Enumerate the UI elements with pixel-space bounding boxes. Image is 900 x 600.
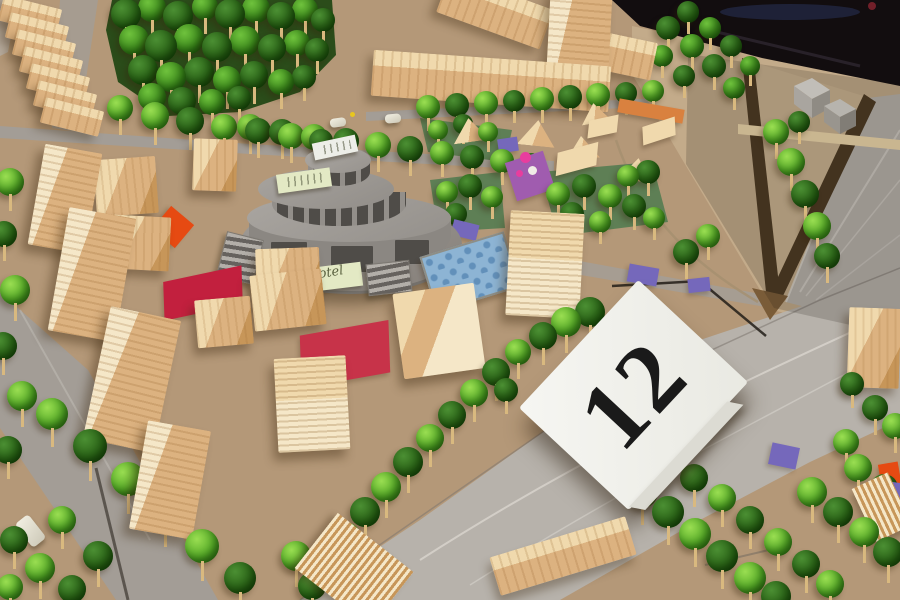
tree-trunk-stick — [505, 401, 508, 415]
tree-trunk-stick — [583, 197, 586, 211]
tree-trunk-stick — [633, 217, 636, 231]
tree-trunk-stick — [721, 570, 724, 589]
model-tree — [673, 239, 699, 265]
tree-trunk-stick — [97, 569, 100, 586]
tree-trunk-stick — [713, 77, 716, 91]
tree-trunk-stick — [473, 405, 476, 421]
tree-trunk-stick — [345, 152, 348, 167]
wood-cube-building — [93, 156, 159, 217]
tree-trunk-stick — [863, 545, 866, 562]
tree-trunk-stick — [501, 172, 504, 186]
model-tree — [292, 65, 316, 89]
model-tree — [83, 541, 113, 571]
model-tree — [849, 517, 879, 547]
model-car — [385, 113, 402, 123]
model-tree — [230, 26, 260, 56]
tree-trunk-stick — [320, 152, 323, 166]
tree-trunk-stick — [798, 132, 801, 145]
tree-trunk-stick — [513, 111, 516, 124]
tree-trunk-stick — [653, 228, 656, 241]
wood-house-building — [392, 283, 485, 380]
model-tree — [494, 378, 518, 402]
model-tree — [460, 145, 484, 169]
model-tree — [788, 111, 810, 133]
wood-cube-building — [249, 268, 326, 331]
felt-purple — [687, 277, 710, 293]
tree-trunk-stick — [201, 561, 204, 581]
tree-trunk-stick — [407, 475, 410, 492]
tree-trunk-stick — [21, 409, 24, 426]
tree-trunk-stick — [429, 450, 432, 466]
model-tree — [0, 275, 30, 305]
tree-trunk-stick — [541, 110, 544, 124]
model-tree — [311, 8, 335, 32]
tree-trunk-stick — [667, 526, 670, 545]
model-tree — [268, 69, 294, 95]
model-tree — [128, 55, 158, 85]
model-tree — [652, 496, 684, 528]
tree-trunk-stick — [829, 596, 832, 600]
model-tree — [73, 429, 107, 463]
model-tree — [598, 184, 622, 208]
tree-trunk-stick — [777, 554, 780, 570]
model-tree — [36, 398, 68, 430]
model-tree — [245, 118, 271, 144]
model-tree — [696, 224, 720, 248]
tree-trunk-stick — [733, 98, 736, 111]
model-tree — [185, 529, 219, 563]
tree-trunk-stick — [3, 245, 6, 260]
tree-trunk-stick — [565, 335, 568, 352]
stair-ramp — [365, 260, 412, 296]
model-tree — [119, 25, 149, 55]
model-tree — [636, 160, 660, 184]
model-tree — [740, 56, 760, 76]
model-tree — [224, 562, 256, 594]
model-tree — [840, 372, 864, 396]
model-tree — [0, 526, 28, 554]
model-tree — [397, 136, 423, 162]
tree-trunk-stick — [837, 525, 840, 542]
tree-trunk-stick — [127, 494, 130, 514]
model-tree — [438, 401, 466, 429]
model-tree — [702, 54, 726, 78]
tree-trunk-stick — [377, 156, 380, 171]
model-tree — [706, 540, 738, 572]
model-tree — [416, 424, 444, 452]
model-tree — [736, 506, 764, 534]
model-tree — [617, 165, 639, 187]
model-tree — [430, 141, 454, 165]
tree-trunk-stick — [469, 197, 472, 211]
tree-trunk-stick — [61, 532, 64, 548]
tree-trunk-stick — [826, 267, 829, 282]
tree-trunk-stick — [730, 56, 733, 69]
model-tree — [478, 122, 498, 142]
wood-cube-building — [192, 138, 238, 192]
paper-flower-white — [528, 166, 537, 175]
model-tree — [814, 243, 840, 269]
tree-trunk-stick — [316, 61, 319, 75]
model-tree — [350, 497, 380, 527]
tree-trunk-stick — [239, 592, 242, 600]
tree-trunk-stick — [707, 247, 710, 261]
model-tree — [393, 447, 423, 477]
tree-trunk-stick — [811, 505, 814, 522]
tree-trunk-stick — [189, 133, 192, 149]
model-tree — [833, 429, 859, 455]
tree-trunk-stick — [7, 462, 10, 478]
model-tree — [680, 34, 704, 58]
map-pin-yellow — [350, 112, 355, 117]
model-tree — [723, 77, 745, 99]
tree-trunk-stick — [253, 87, 256, 103]
tree-trunk-stick — [303, 88, 306, 102]
model-tree — [505, 339, 531, 365]
paper-flower — [520, 152, 531, 163]
tree-trunk-stick — [851, 395, 854, 409]
tree-trunk-stick — [683, 86, 686, 99]
tree-trunk-stick — [9, 194, 12, 210]
tree-trunk-stick — [451, 427, 454, 443]
tree-trunk-stick — [694, 548, 697, 567]
tree-trunk-stick — [441, 164, 444, 178]
model-tree — [677, 1, 699, 23]
tree-trunk-stick — [409, 160, 412, 175]
tree-trunk-stick — [687, 22, 690, 35]
tree-trunk-stick — [887, 565, 890, 582]
wood-house-building — [274, 355, 351, 453]
model-tree — [481, 186, 503, 208]
background-blur — [720, 4, 860, 20]
model-tree — [365, 132, 391, 158]
tree-trunk-stick — [51, 428, 54, 447]
model-tree — [679, 518, 711, 550]
model-tree — [797, 477, 827, 507]
model-tree — [176, 107, 204, 135]
tree-trunk-stick — [491, 207, 494, 220]
model-tree — [642, 80, 664, 102]
tree-trunk-stick — [280, 93, 283, 108]
model-tree — [428, 120, 448, 140]
tree-trunk-stick — [204, 18, 207, 33]
model-tree — [184, 57, 214, 87]
model-tree — [643, 207, 665, 229]
tree-trunk-stick — [749, 592, 752, 600]
tree-trunk-stick — [599, 232, 602, 245]
model-tree — [586, 83, 610, 107]
model-tree — [333, 128, 359, 154]
model-tree — [58, 575, 86, 600]
model-tree — [844, 454, 872, 482]
model-tree — [199, 89, 225, 115]
tree-trunk-stick — [154, 128, 157, 144]
model-tree — [48, 506, 76, 534]
tree-trunk-stick — [13, 552, 16, 568]
model-tree — [305, 38, 329, 62]
tree-trunk-stick — [39, 581, 42, 598]
tree-trunk-stick — [2, 358, 5, 374]
tree-trunk-stick — [709, 38, 712, 51]
architectural-model-photo: Hotel 12 — [0, 0, 900, 600]
model-tree — [240, 61, 268, 89]
model-tree — [816, 570, 844, 598]
model-tree — [823, 497, 853, 527]
tree-trunk-stick — [661, 66, 664, 79]
model-tree — [530, 87, 554, 111]
tree-trunk-stick — [257, 142, 260, 157]
model-tree — [458, 174, 482, 198]
model-tree — [371, 472, 401, 502]
model-tree — [764, 528, 792, 556]
model-tree — [7, 381, 37, 411]
model-tree — [708, 484, 736, 512]
model-tree — [873, 537, 900, 567]
model-tree — [503, 90, 525, 112]
model-tree — [529, 322, 557, 350]
tree-trunk-stick — [569, 108, 572, 122]
tree-trunk-stick — [749, 532, 752, 548]
model-tree — [460, 379, 488, 407]
model-tree — [699, 17, 721, 39]
tree-trunk-stick — [647, 183, 650, 197]
model-tree — [777, 148, 805, 176]
model-tree — [215, 0, 245, 29]
background-dot — [868, 2, 876, 10]
tree-trunk-stick — [894, 437, 897, 452]
tree-trunk-stick — [119, 119, 122, 134]
model-tree — [267, 2, 295, 30]
wood-house-building — [505, 210, 584, 319]
model-tree — [791, 180, 819, 208]
model-tree — [763, 119, 789, 145]
tree-trunk-stick — [874, 419, 877, 434]
tree-trunk-stick — [721, 510, 724, 526]
tree-trunk-stick — [685, 263, 688, 278]
model-tree — [589, 211, 611, 233]
model-tree — [309, 129, 333, 153]
model-tree — [141, 102, 169, 130]
tree-trunk-stick — [385, 500, 388, 517]
model-tree — [673, 65, 695, 87]
tree-trunk-stick — [805, 576, 808, 592]
tree-trunk-stick — [517, 363, 520, 378]
tree-trunk-stick — [487, 141, 490, 153]
model-tree — [211, 114, 237, 140]
model-tree — [720, 35, 742, 57]
tree-trunk-stick — [89, 461, 92, 481]
tree-trunk-stick — [693, 490, 696, 506]
model-tree — [25, 553, 55, 583]
model-tree — [202, 32, 232, 62]
model-tree — [803, 212, 831, 240]
model-tree — [572, 174, 596, 198]
tree-trunk-stick — [290, 147, 293, 162]
model-tree — [656, 16, 680, 40]
model-tree — [174, 24, 204, 54]
tree-trunk-stick — [749, 75, 752, 87]
model-tree — [227, 86, 251, 110]
wood-cube-building — [194, 296, 254, 349]
model-tree — [436, 181, 458, 203]
tree-trunk-stick — [14, 303, 17, 320]
model-tree — [416, 95, 440, 119]
paper-flower — [516, 170, 523, 177]
tree-trunk-stick — [542, 348, 545, 364]
model-tree — [558, 85, 582, 109]
model-tree — [258, 34, 286, 62]
model-tree — [474, 91, 498, 115]
model-tree — [107, 95, 133, 121]
model-tree — [792, 550, 820, 578]
